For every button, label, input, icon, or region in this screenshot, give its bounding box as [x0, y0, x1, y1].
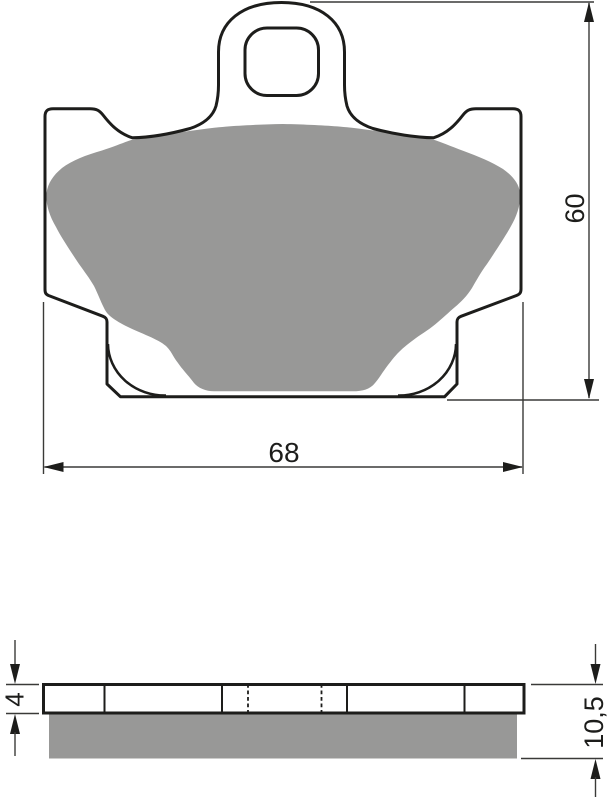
svg-text:10,5: 10,5: [579, 696, 608, 749]
svg-text:4: 4: [0, 692, 30, 706]
svg-text:60: 60: [560, 193, 590, 223]
svg-text:68: 68: [268, 437, 299, 468]
